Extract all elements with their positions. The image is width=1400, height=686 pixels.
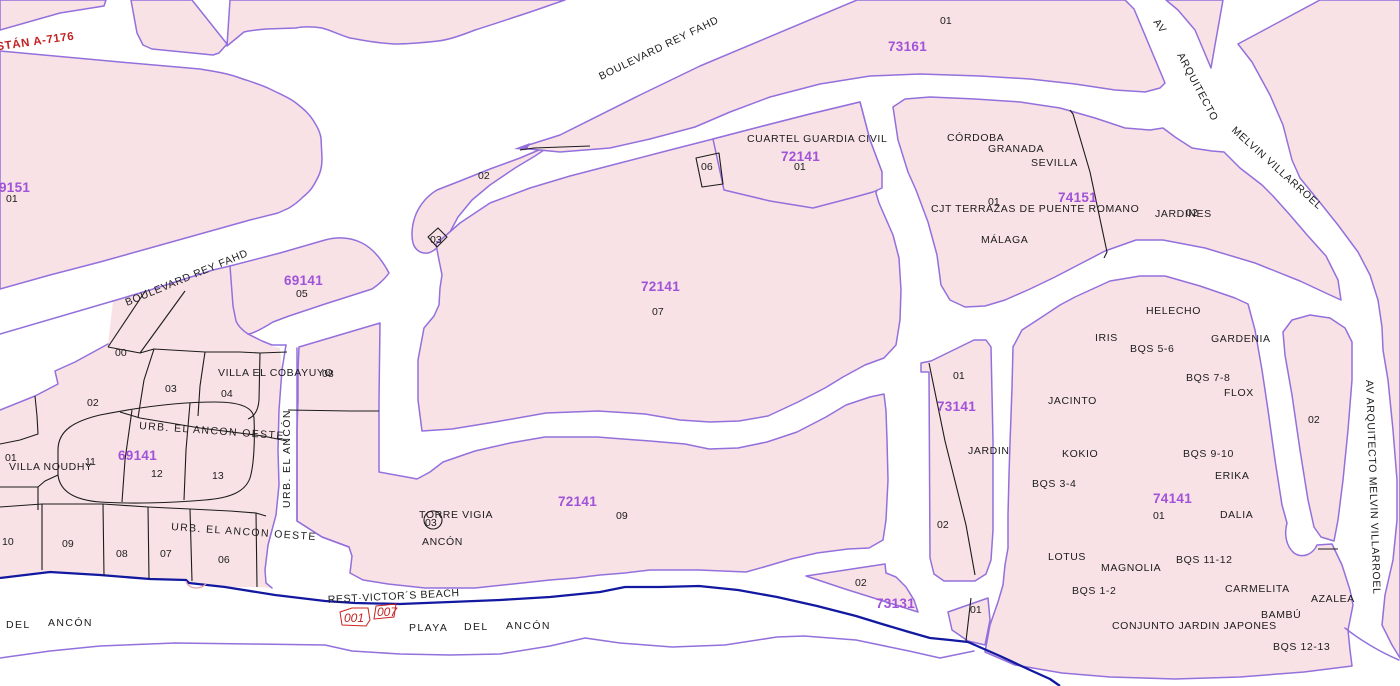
svg-text:BQS 1-2: BQS 1-2 (1072, 585, 1116, 597)
svg-text:08: 08 (322, 368, 334, 380)
svg-text:73161: 73161 (888, 39, 927, 54)
svg-text:KOKIO: KOKIO (1062, 448, 1098, 460)
svg-text:VILLA EL COBAYUYO: VILLA EL COBAYUYO (218, 367, 333, 379)
svg-text:BQS 9-10: BQS 9-10 (1183, 448, 1234, 460)
svg-text:69141: 69141 (284, 273, 323, 288)
svg-text:LOTUS: LOTUS (1048, 551, 1086, 563)
svg-text:URB. EL ANCÓN: URB. EL ANCÓN (280, 409, 293, 508)
svg-text:72141: 72141 (558, 494, 597, 509)
svg-text:VILLA NOUDHY: VILLA NOUDHY (9, 461, 93, 473)
svg-text:09: 09 (62, 538, 74, 550)
svg-text:10: 10 (2, 536, 14, 548)
svg-text:04: 04 (221, 388, 233, 400)
svg-text:PLAYA: PLAYA (409, 622, 448, 634)
svg-text:JARDINES: JARDINES (1155, 208, 1212, 220)
svg-text:01: 01 (1153, 510, 1165, 522)
svg-text:ANCÓN: ANCÓN (506, 619, 551, 632)
svg-text:06: 06 (218, 554, 230, 566)
svg-text:SEVILLA: SEVILLA (1031, 157, 1078, 169)
svg-text:03: 03 (165, 383, 177, 395)
svg-text:DEL: DEL (6, 619, 31, 631)
svg-text:74151: 74151 (1058, 190, 1097, 205)
svg-text:69141: 69141 (118, 448, 157, 463)
svg-text:02: 02 (87, 397, 99, 409)
svg-text:01: 01 (794, 161, 806, 173)
svg-text:73131: 73131 (876, 596, 915, 611)
svg-text:02: 02 (855, 577, 867, 589)
svg-text:03: 03 (425, 517, 437, 529)
svg-text:BQS 11-12: BQS 11-12 (1176, 554, 1233, 566)
svg-text:BQS 7-8: BQS 7-8 (1186, 372, 1230, 384)
svg-text:01: 01 (953, 370, 965, 382)
svg-text:GRANADA: GRANADA (988, 143, 1044, 155)
svg-text:02: 02 (937, 519, 949, 531)
svg-text:02: 02 (478, 170, 490, 182)
svg-text:13: 13 (212, 470, 224, 482)
svg-text:CARMELITA: CARMELITA (1225, 583, 1290, 595)
svg-text:AZALEA: AZALEA (1311, 593, 1355, 605)
svg-text:HELECHO: HELECHO (1146, 305, 1201, 317)
svg-text:JACINTO: JACINTO (1048, 395, 1097, 407)
svg-text:BQS 12-13: BQS 12-13 (1273, 641, 1330, 653)
svg-text:MÁLAGA: MÁLAGA (981, 233, 1028, 246)
svg-text:BQS 3-4: BQS 3-4 (1032, 478, 1076, 490)
svg-text:12: 12 (151, 468, 163, 480)
svg-text:IRIS: IRIS (1095, 332, 1118, 344)
svg-text:ERIKA: ERIKA (1215, 470, 1250, 482)
svg-text:03: 03 (430, 234, 442, 246)
svg-text:CUARTEL GUARDIA CIVIL: CUARTEL GUARDIA CIVIL (747, 133, 887, 145)
svg-text:FLOX: FLOX (1224, 387, 1254, 399)
svg-text:08: 08 (116, 548, 128, 560)
svg-text:01: 01 (6, 193, 18, 205)
svg-text:001: 001 (344, 611, 364, 625)
svg-text:JARDIN: JARDIN (968, 445, 1010, 457)
svg-text:GARDENIA: GARDENIA (1211, 333, 1271, 345)
svg-text:11: 11 (85, 456, 96, 468)
svg-text:02: 02 (1308, 414, 1320, 426)
svg-text:01: 01 (970, 604, 982, 616)
svg-text:72141: 72141 (641, 279, 680, 294)
svg-text:00: 00 (115, 347, 127, 359)
svg-text:ANCÓN: ANCÓN (48, 616, 93, 629)
svg-text:07: 07 (160, 548, 172, 560)
svg-text:07: 07 (652, 306, 664, 318)
svg-text:CJT TERRAZAS DE PUENTE ROMANO: CJT TERRAZAS DE PUENTE ROMANO (931, 203, 1139, 215)
svg-text:ANCÓN: ANCÓN (422, 535, 463, 548)
svg-text:01: 01 (940, 15, 952, 27)
svg-text:02: 02 (1186, 207, 1198, 219)
svg-text:CONJUNTO JARDIN JAPONES: CONJUNTO JARDIN JAPONES (1112, 620, 1277, 632)
svg-text:09: 09 (616, 510, 628, 522)
svg-text:BQS 5-6: BQS 5-6 (1130, 343, 1174, 355)
svg-text:05: 05 (296, 288, 308, 300)
svg-text:06: 06 (701, 161, 713, 173)
svg-text:MAGNOLIA: MAGNOLIA (1101, 562, 1161, 574)
svg-text:007: 007 (377, 605, 398, 619)
svg-text:73141: 73141 (937, 399, 976, 414)
svg-text:74141: 74141 (1153, 491, 1192, 506)
svg-text:DALIA: DALIA (1220, 509, 1253, 521)
svg-text:DEL: DEL (464, 621, 489, 633)
